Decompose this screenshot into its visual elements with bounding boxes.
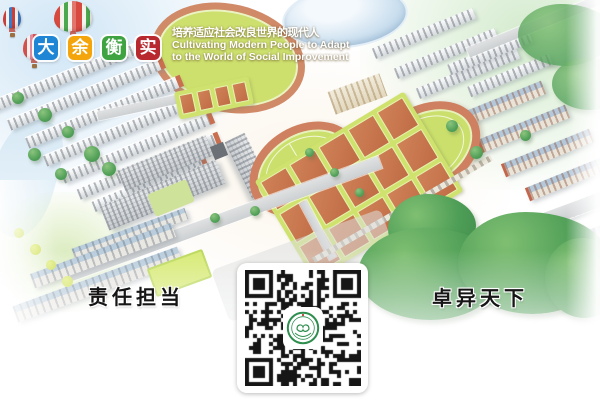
- tree: [55, 168, 67, 180]
- tree: [102, 162, 116, 176]
- tree: [28, 148, 41, 161]
- logo-block-4: 实: [136, 36, 160, 60]
- sports-court: [214, 85, 232, 107]
- logo-block-1: 大: [34, 36, 58, 60]
- tree: [305, 148, 314, 157]
- balloon-basket: [10, 33, 15, 37]
- school-seal-icon: [283, 307, 323, 349]
- slogan-english-line1: Cultivating Modern People to Adapt: [172, 40, 350, 51]
- logo-block-3: 衡: [102, 36, 126, 60]
- balloon-neck: [9, 28, 16, 32]
- sports-court: [196, 89, 214, 111]
- balloon-envelope: [3, 7, 21, 29]
- sports-court: [231, 81, 249, 103]
- campus-poster: 大 余 衡 实 培养适应社会改良世界的现代人 Cultivating Moder…: [0, 0, 600, 400]
- tree: [446, 120, 458, 132]
- tree: [330, 168, 339, 177]
- tree: [14, 228, 24, 238]
- school-slogan: 培养适应社会改良世界的现代人 Cultivating Modern People…: [172, 27, 350, 62]
- qr-code: [237, 263, 368, 393]
- logo-block-2: 余: [68, 36, 92, 60]
- slogan-chinese: 培养适应社会改良世界的现代人: [172, 27, 350, 39]
- tree: [470, 146, 483, 159]
- caption-responsibility: 责任担当: [88, 281, 184, 310]
- tree: [12, 92, 24, 104]
- tree: [46, 260, 56, 270]
- balloon-neck: [70, 31, 77, 35]
- hot-air-balloon-icon: [54, 1, 92, 41]
- tree: [38, 108, 52, 122]
- tree: [30, 244, 41, 255]
- school-seal-graphic: [286, 311, 320, 345]
- balloon-envelope: [54, 1, 92, 32]
- tree: [84, 146, 100, 162]
- caption-excellence: 卓异天下: [432, 282, 528, 311]
- slogan-english-line2: to the World of Social Improvement: [172, 52, 350, 63]
- tree: [62, 126, 74, 138]
- tree: [520, 130, 531, 141]
- tree: [355, 188, 364, 197]
- tree: [62, 276, 73, 287]
- school-logo: 大 余 衡 实: [34, 36, 160, 60]
- sports-court: [179, 92, 197, 114]
- hot-air-balloon-icon: [3, 7, 21, 37]
- tree: [250, 206, 260, 216]
- balloon-basket: [32, 64, 37, 68]
- tree: [210, 213, 220, 223]
